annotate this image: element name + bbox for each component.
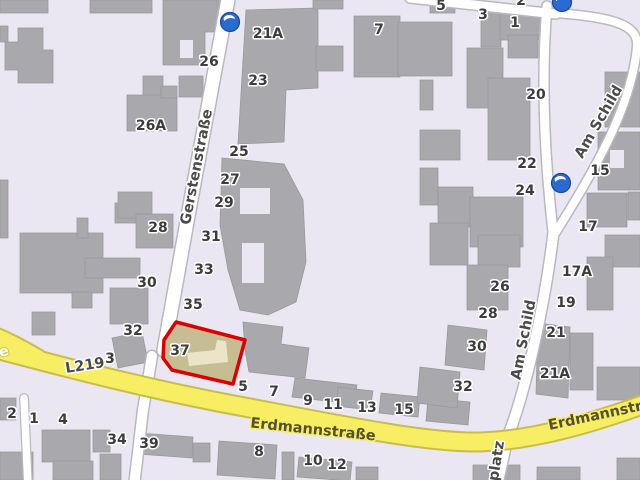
- house-number-label: 28: [478, 306, 497, 322]
- house-number-label: 27: [220, 172, 239, 188]
- house-number-label: 32: [123, 323, 142, 339]
- house-number-label: 1: [510, 15, 520, 31]
- house-number-label: 21: [546, 325, 565, 341]
- house-number-label: 20: [526, 87, 546, 103]
- house-number-label: 23: [248, 73, 267, 89]
- house-number-label: 25: [229, 144, 248, 160]
- house-number-label: 30: [467, 339, 487, 355]
- house-number-label: 30: [137, 275, 157, 291]
- house-number-label: 33: [194, 262, 213, 278]
- house-number-label: 9: [303, 393, 313, 409]
- map-viewport[interactable]: GerstenstraßeErdmannstraßeErdmannstraßeA…: [0, 0, 640, 480]
- house-number-label: 26A: [136, 118, 166, 134]
- house-number-label: 17A: [562, 264, 592, 280]
- house-number-label: 29: [214, 195, 233, 211]
- house-number-label: 5: [436, 0, 446, 14]
- house-number-label: 13: [357, 400, 376, 416]
- house-number-label: 31: [201, 229, 220, 245]
- house-number-label: 22: [517, 156, 536, 172]
- house-number-label: 7: [374, 22, 384, 38]
- house-number-label: 15: [590, 163, 609, 179]
- house-number-label: 34: [107, 432, 127, 448]
- house-number-label: 28: [148, 220, 167, 236]
- house-number-label: 2: [7, 406, 17, 422]
- house-number-label: 3: [105, 351, 115, 367]
- house-number-label: 12: [327, 457, 346, 473]
- house-number-label: 7: [269, 384, 279, 400]
- house-number-label: 3: [478, 7, 488, 23]
- map-canvas[interactable]: GerstenstraßeErdmannstraßeErdmannstraßeA…: [0, 0, 640, 480]
- house-number-label: 19: [556, 295, 575, 311]
- house-number-label: 8: [254, 444, 264, 460]
- house-number-label: 32: [453, 379, 472, 395]
- house-number-label: 24: [515, 183, 535, 199]
- house-number-label: 5: [238, 379, 248, 395]
- house-number-label: 26: [199, 54, 218, 70]
- house-number-label: 2: [516, 0, 526, 9]
- house-number-label: 21A: [253, 26, 283, 42]
- house-number-label: 17: [578, 219, 597, 235]
- oneway-arrow-icon: [552, 174, 571, 193]
- house-number-label: 39: [139, 436, 158, 452]
- house-number-label: 4: [58, 412, 68, 428]
- house-number-label: 10: [303, 453, 323, 469]
- house-number-label: 35: [183, 297, 202, 313]
- house-number-label: 21A: [540, 366, 570, 382]
- house-number-label: 11: [323, 397, 342, 413]
- house-number-label: 26: [490, 279, 509, 295]
- house-number-label: 1: [29, 411, 39, 427]
- house-number-label: 37: [170, 343, 189, 359]
- house-number-label: 15: [394, 402, 413, 418]
- oneway-arrow-icon: [221, 13, 240, 32]
